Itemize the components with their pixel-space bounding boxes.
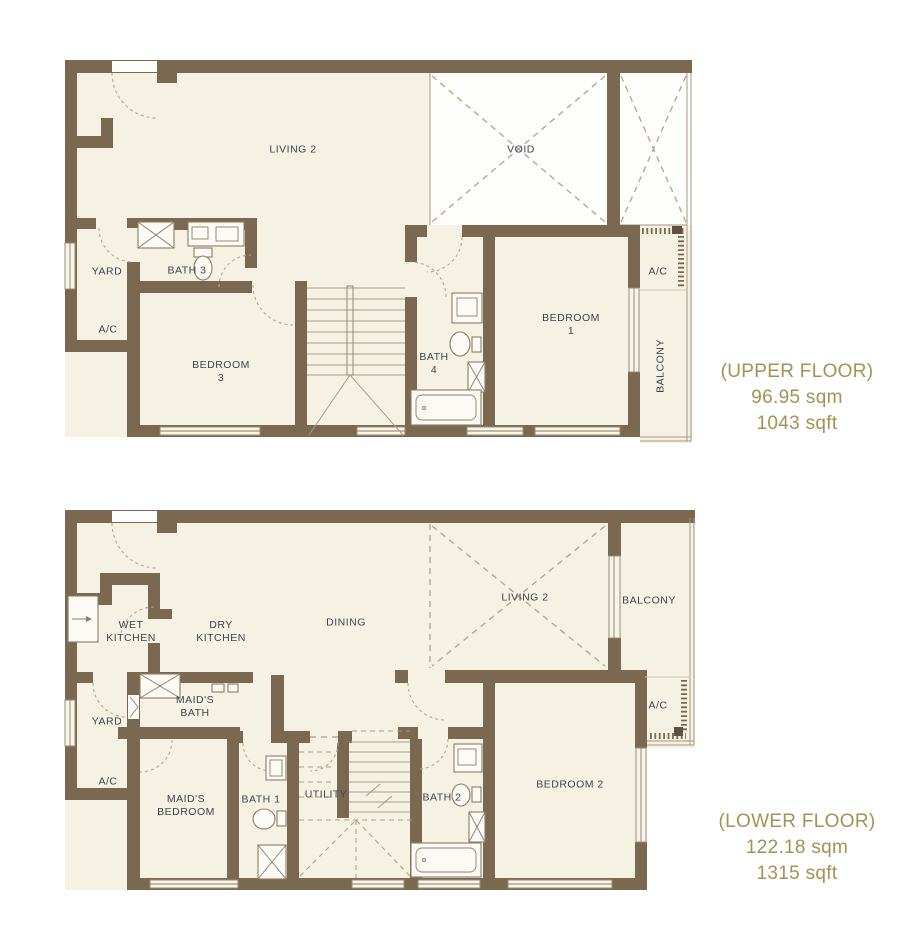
lower-bath1-label: BATH 1	[242, 794, 281, 807]
lower-living-label: LIVING 2	[501, 592, 548, 605]
upper-living-label: LIVING 2	[269, 144, 316, 157]
lower-dry-kitchen-label: DRY KITCHEN	[196, 619, 246, 645]
bath1-sink	[266, 756, 286, 780]
upper-ac-right-label: A/C	[648, 266, 667, 279]
lower-balcony-label: BALCONY	[622, 595, 676, 608]
bath3-vanity	[188, 222, 244, 246]
bath4-bathtub	[411, 390, 481, 425]
lower-floor-area-annotation: (LOWER FLOOR) 122.18 sqm 1315 sqft	[677, 809, 917, 887]
upper-bedroom1-label: BEDROOM 1	[542, 312, 600, 338]
upper-floor-area-annotation: (UPPER FLOOR) 96.95 sqm 1043 sqft	[677, 359, 917, 437]
lower-dining-label: DINING	[326, 617, 366, 630]
bath4-shaft	[468, 362, 485, 392]
lower-bedroom2-label: BEDROOM 2	[536, 779, 604, 792]
lower-utility-label: UTILITY	[305, 789, 348, 802]
upper-bedroom3-label: BEDROOM 3	[192, 359, 250, 385]
upper-bath3-label: BATH 3	[168, 265, 207, 278]
bath2-sink	[454, 744, 482, 772]
lower-floor-fill	[65, 510, 695, 890]
lower-floor-area-sqft: 1315 sqft	[677, 861, 917, 887]
wet-kitchen-sink	[68, 596, 98, 642]
lower-floor-title: (LOWER FLOOR)	[677, 809, 917, 835]
lower-floor-plan	[65, 510, 695, 890]
upper-void-label: VOID	[507, 144, 535, 157]
upper-ac-left-label: A/C	[98, 324, 117, 337]
lower-yard-label: YARD	[92, 716, 122, 729]
lower-bath2-label: BATH 2	[423, 792, 462, 805]
upper-void-areas	[430, 73, 687, 225]
upper-floor-area-sqft: 1043 sqft	[677, 411, 917, 437]
upper-floor-plan	[65, 60, 692, 443]
lower-maids-bath-label: MAID'S BATH	[176, 694, 214, 720]
lower-floor-area-sqm: 122.18 sqm	[677, 835, 917, 861]
floor-plan-page: LIVING 2 VOID YARD BATH 3 A/C BEDROOM 3 …	[0, 0, 920, 930]
lower-ac-right-label: A/C	[648, 700, 667, 713]
lower-ac-left-label: A/C	[98, 776, 117, 789]
lower-wet-kitchen-label: WET KITCHEN	[106, 619, 156, 645]
bath2-bathtub	[411, 843, 481, 877]
maids-bath-door-bifold	[128, 695, 139, 719]
upper-bath4-label: BATH 4	[419, 351, 448, 377]
bath1-shaft	[258, 845, 286, 879]
bath2-shaft	[469, 812, 485, 842]
bath3-shower	[138, 222, 174, 248]
lower-maids-bedroom-label: MAID'S BEDROOM	[157, 793, 215, 819]
upper-floor-area-sqm: 96.95 sqm	[677, 385, 917, 411]
maids-bath-shower	[140, 674, 180, 698]
bath4-sink	[452, 293, 482, 323]
upper-floor-title: (UPPER FLOOR)	[677, 359, 917, 385]
upper-yard-label: YARD	[92, 266, 122, 279]
upper-balcony-label: BALCONY	[655, 339, 668, 393]
bath1-toilet	[253, 809, 286, 829]
floor-plan-drawing	[0, 0, 920, 930]
